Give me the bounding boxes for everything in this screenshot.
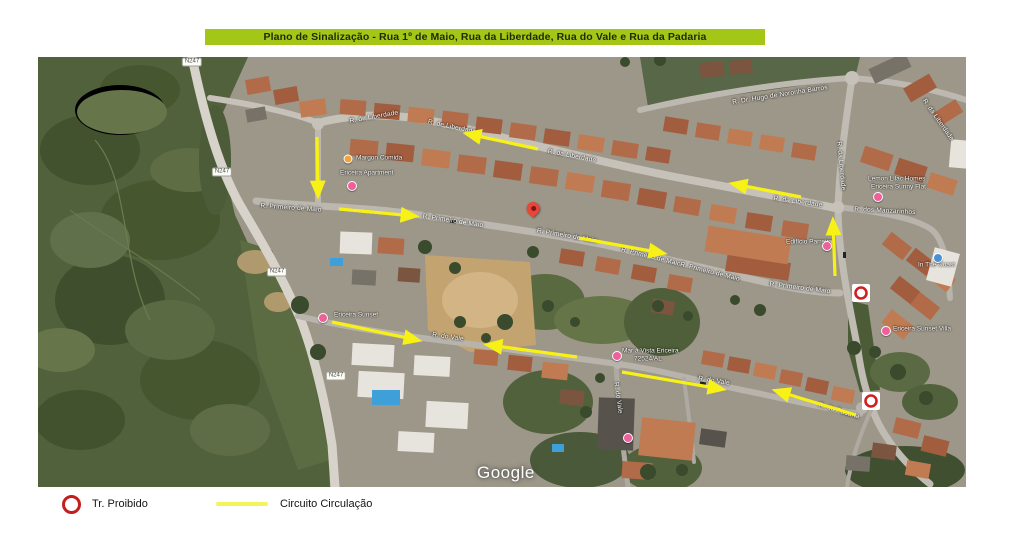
google-attribution: Google [477,463,535,483]
legend-prohibited-label: Tr. Proibido [92,498,148,510]
legend-circuit-label: Circuito Circulação [280,498,372,510]
satellite-map: R. de LiberdadeR. de LiberdadeR. da Libe… [38,57,966,487]
no-entry-legend-icon [62,495,81,514]
plan-title: Plano de Sinalização - Rua 1º de Maio, R… [264,31,707,43]
satellite-imagery [38,57,966,487]
plan-title-banner: Plano de Sinalização - Rua 1º de Maio, R… [205,29,765,45]
circuit-legend-line-icon [216,502,268,506]
